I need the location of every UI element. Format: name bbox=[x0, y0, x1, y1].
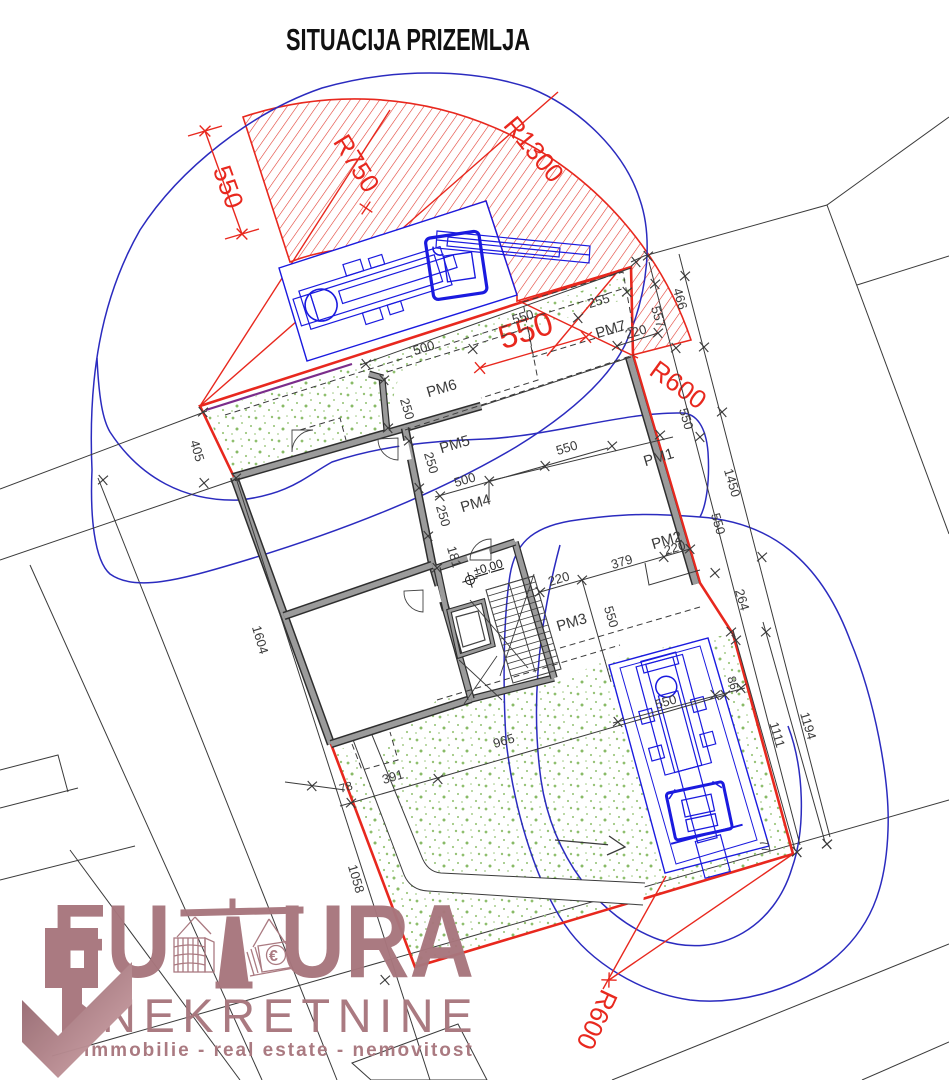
svg-text:immobilie - real estate - nemo: immobilie - real estate - nemovitost bbox=[84, 1040, 474, 1061]
svg-text:NEKRETNINE: NEKRETNINE bbox=[102, 989, 480, 1042]
svg-text:SITUACIJA PRIZEMLJA: SITUACIJA PRIZEMLJA bbox=[286, 22, 530, 57]
svg-text:€: € bbox=[269, 948, 278, 965]
svg-text:URA: URA bbox=[280, 883, 474, 1000]
